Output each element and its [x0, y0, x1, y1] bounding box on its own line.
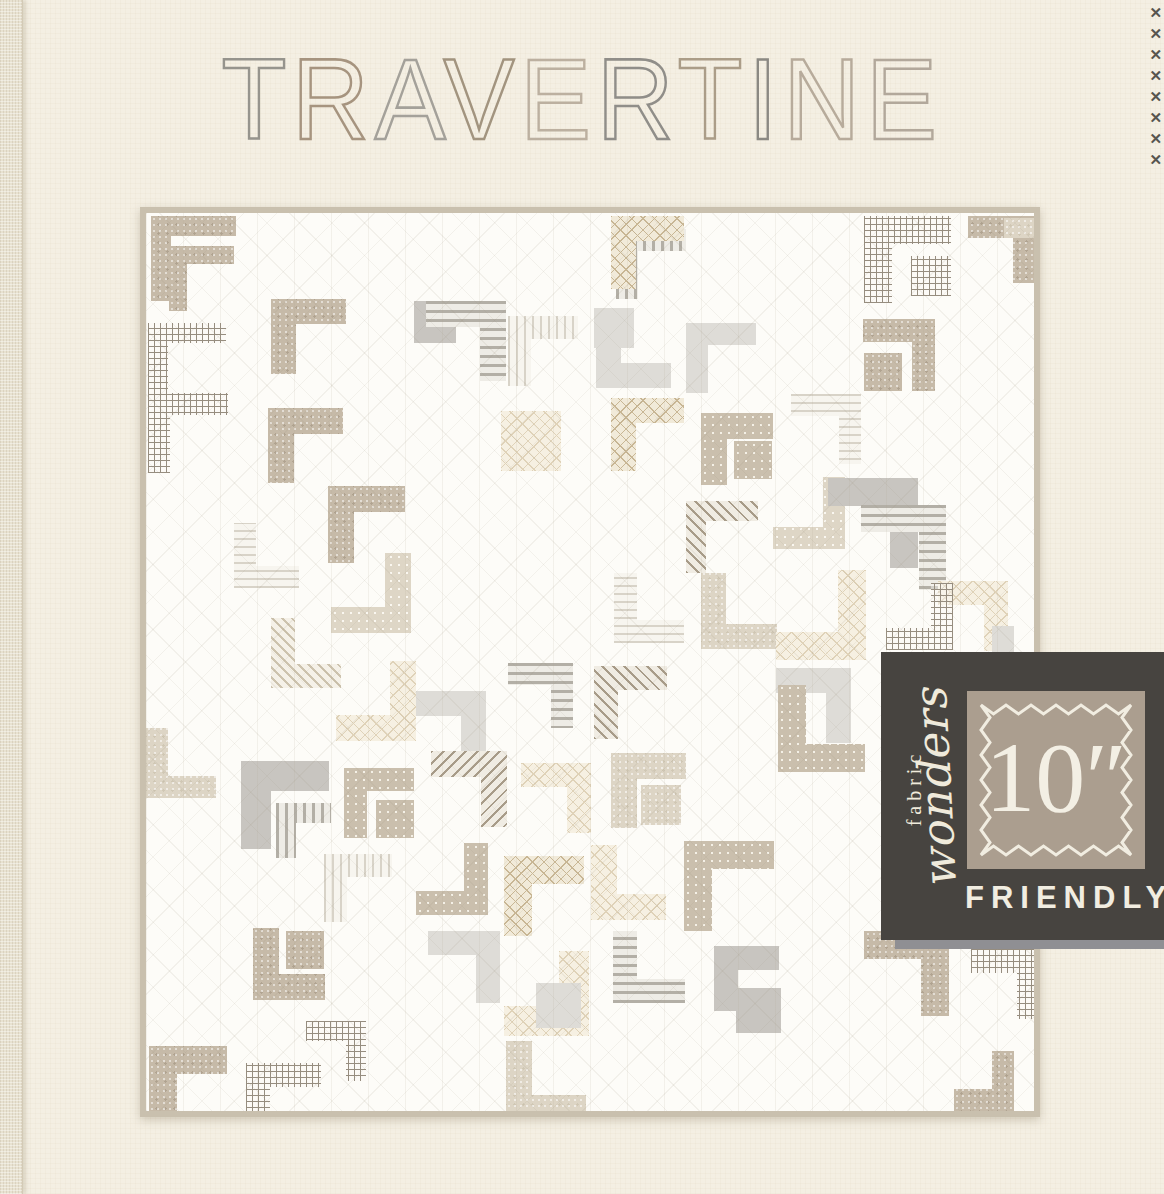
quilt-l-block: [508, 663, 573, 728]
quilt-l-block: [506, 1041, 586, 1111]
quilt-l-block: [971, 949, 1034, 1019]
quilt-l-block: [324, 854, 392, 922]
stitch-x-icon: ✕: [1149, 107, 1162, 128]
quilt-l-block: [416, 843, 488, 915]
quilt-l-block: [148, 323, 226, 401]
quilt-l-block: [271, 299, 346, 374]
quilt-l-block: [591, 845, 666, 920]
quilt-l-block: [611, 398, 684, 471]
quilt-square-patch: [736, 988, 781, 1033]
quilt-l-block: [331, 553, 411, 633]
quilt-l-block: [886, 583, 953, 650]
title-letter: I: [748, 36, 783, 163]
quilt-l-block: [234, 523, 299, 588]
title-letter: R: [597, 36, 678, 163]
quilt-l-block: [701, 573, 777, 649]
quilt-l-block: [791, 394, 861, 464]
quilt-l-block: [614, 573, 684, 643]
title-letter: T: [677, 36, 748, 163]
quilt-l-block: [428, 931, 500, 1003]
stitch-x-icon: ✕: [1149, 23, 1162, 44]
friendly-label: FRIENDLY: [965, 880, 1147, 916]
stitch-x-icon: ✕: [1149, 65, 1162, 86]
title-letter: V: [443, 36, 520, 163]
quilt-square-patch: [501, 411, 561, 471]
fabric-wonders-badge: fabric wonders 10″ FRIENDLY: [881, 652, 1164, 940]
title-letter: T: [221, 36, 292, 163]
quilt-square-patch: [536, 983, 581, 1028]
title-letter: E: [520, 36, 597, 163]
quilt-l-block: [504, 856, 584, 936]
quilt-square-patch: [734, 441, 772, 479]
badge-shadow: [895, 940, 1164, 949]
quilt-l-block: [431, 751, 507, 827]
quilt-l-block: [328, 486, 405, 563]
brand-vertical-text: fabric wonders: [895, 695, 965, 881]
quilt-l-block: [594, 666, 667, 739]
stitch-x-icon: ✕: [1149, 2, 1162, 23]
quilt-square-patch: [864, 353, 902, 391]
quilt-l-block: [613, 931, 685, 1003]
title-letter: R: [292, 36, 375, 163]
quilt-square-patch: [286, 931, 324, 969]
title-letter: N: [783, 36, 866, 163]
quilt-l-block: [276, 803, 331, 858]
quilt-square-patch: [376, 800, 414, 838]
page-title: TRAVERTINE: [29, 41, 1135, 159]
stitch-x-icon: ✕: [1149, 86, 1162, 107]
quilt-l-block: [778, 685, 865, 772]
stitch-x-icon: ✕: [1149, 149, 1162, 170]
size-label: 10″: [967, 691, 1145, 869]
quilt-l-block: [521, 763, 591, 833]
left-selvage-strip: [0, 0, 23, 1194]
stitch-x-icon: ✕: [1149, 44, 1162, 65]
quilt-l-block: [146, 728, 216, 798]
quilt-l-block: [148, 393, 228, 473]
brand-wonders-label: wonders: [909, 686, 961, 890]
quilt-l-block: [246, 1063, 321, 1111]
quilt-l-block: [776, 570, 866, 660]
quilt-l-block: [508, 316, 578, 386]
quilt-l-block: [686, 501, 758, 573]
quilt-square-patch: [641, 785, 681, 825]
title-letter: E: [866, 36, 943, 163]
quilt-l-block: [271, 618, 341, 688]
quilt-l-block: [686, 323, 756, 393]
stitch-x-icon: ✕: [1149, 128, 1162, 149]
title-letter: A: [375, 36, 444, 163]
quilt-l-block: [169, 246, 234, 311]
quilt-l-block: [611, 216, 684, 289]
stitched-x-column: ✕✕✕✕✕✕✕✕: [1149, 2, 1162, 170]
quilt-l-block: [684, 841, 774, 931]
quilt-l-block: [336, 661, 416, 741]
fabric-swatch-stamp: 10″: [967, 691, 1145, 869]
quilt-l-block: [954, 1051, 1014, 1111]
quilt-l-block: [268, 408, 343, 483]
quilt-l-block: [149, 1046, 227, 1111]
quilt-square-patch: [911, 256, 951, 296]
